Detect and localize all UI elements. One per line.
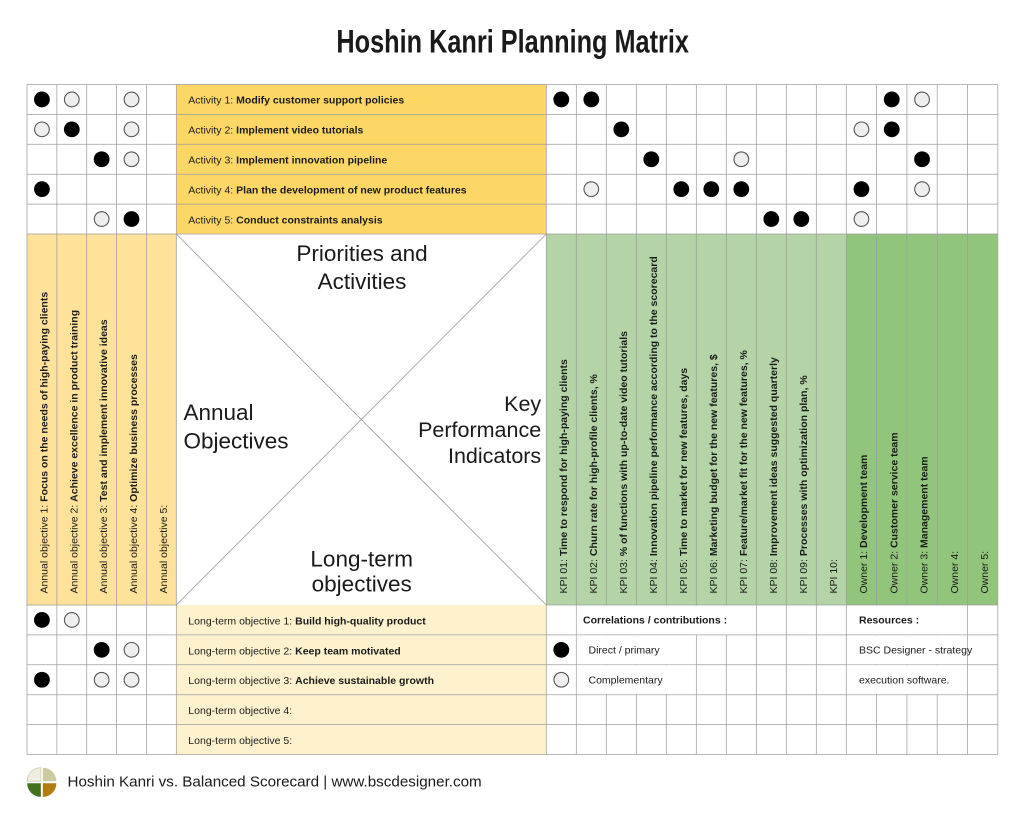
svg-text:KPI 03: % of functions with up: KPI 03: % of functions with up-to-date v…: [618, 331, 630, 594]
svg-text:Activity 3: Implement innovati: Activity 3: Implement innovation pipelin…: [188, 154, 387, 166]
svg-text:KPI 10:: KPI 10:: [828, 559, 840, 593]
svg-text:Long-term objective 5:: Long-term objective 5:: [188, 735, 292, 747]
svg-text:Annual objective 5:: Annual objective 5:: [158, 505, 170, 594]
svg-text:Owner 3: Management team: Owner 3: Management team: [919, 456, 931, 593]
svg-text:Correlations / contributions :: Correlations / contributions :: [583, 615, 727, 627]
svg-text:KPI 04: Innovation pipeline pe: KPI 04: Innovation pipeline performance …: [648, 256, 660, 593]
svg-text:KeyPerformanceIndicators: KeyPerformanceIndicators: [418, 392, 541, 468]
svg-text:Owner 2: Customer service team: Owner 2: Customer service team: [888, 432, 900, 593]
svg-text:KPI 05: Time to market for new: KPI 05: Time to market for new features,…: [678, 368, 690, 594]
svg-text:Owner 5:: Owner 5:: [979, 551, 991, 594]
svg-text:Activity 5: Conduct constraint: Activity 5: Conduct constraints analysis: [188, 214, 382, 226]
svg-text:Long-term objective 3: Achieve: Long-term objective 3: Achieve sustainab…: [188, 675, 434, 687]
svg-text:Owner 4:: Owner 4:: [949, 551, 961, 594]
svg-text:Annual objective 1: Focus on t: Annual objective 1: Focus on the needs o…: [38, 292, 50, 594]
svg-text:Activity 1: Modify customer su: Activity 1: Modify customer support poli…: [188, 95, 404, 107]
svg-text:Activity 4: Plan the developme: Activity 4: Plan the development of new …: [188, 184, 466, 196]
svg-text:Resources :: Resources :: [859, 615, 919, 627]
svg-text:Priorities andActivities: Priorities andActivities: [296, 241, 427, 294]
svg-text:Long-term objective 1: Build h: Long-term objective 1: Build high-qualit…: [188, 615, 426, 627]
svg-text:Annual objective 2: Achieve ex: Annual objective 2: Achieve excellence i…: [68, 310, 80, 594]
svg-text:Hoshin Kanri Planning Matrix: Hoshin Kanri Planning Matrix: [336, 24, 689, 60]
svg-text:Long-term objective 4:: Long-term objective 4:: [188, 705, 292, 717]
svg-text:Hoshin Kanri vs. Balanced Scor: Hoshin Kanri vs. Balanced Scorecard | ww…: [68, 774, 482, 791]
svg-text:BSC Designer - strategy: BSC Designer - strategy: [859, 645, 973, 657]
svg-text:KPI 09: Processes with optimiz: KPI 09: Processes with optimization plan…: [798, 375, 810, 594]
svg-text:Direct / primary: Direct / primary: [589, 645, 661, 657]
svg-text:Complementary: Complementary: [589, 674, 664, 686]
svg-text:KPI 06: Marketing budget for t: KPI 06: Marketing budget for the new fea…: [708, 354, 720, 593]
svg-text:Activity 2: Implement video tu: Activity 2: Implement video tutorials: [188, 125, 363, 137]
svg-text:KPI 01: Time to respond for hi: KPI 01: Time to respond for high-paying …: [558, 359, 570, 594]
svg-text:KPI 08: Improvement ideas sugg: KPI 08: Improvement ideas suggested quar…: [768, 357, 780, 593]
svg-text:Annual objective 3: Test and i: Annual objective 3: Test and implement i…: [98, 319, 110, 593]
svg-text:KPI 02: Churn rate for high-pr: KPI 02: Churn rate for high-profile clie…: [588, 373, 600, 593]
svg-text:Long-term objective 2: Keep te: Long-term objective 2: Keep team motivat…: [188, 645, 400, 657]
svg-text:Owner 1: Development team: Owner 1: Development team: [858, 455, 870, 594]
svg-text:Annual objective 4: Optimize b: Annual objective 4: Optimize business pr…: [128, 354, 140, 593]
svg-text:Long-termobjectives: Long-termobjectives: [310, 547, 413, 597]
svg-text:execution software.: execution software.: [859, 674, 949, 686]
svg-text:AnnualObjectives: AnnualObjectives: [184, 400, 289, 454]
svg-text:KPI 07: Feature/market fit for: KPI 07: Feature/market fit for the new f…: [738, 350, 750, 594]
